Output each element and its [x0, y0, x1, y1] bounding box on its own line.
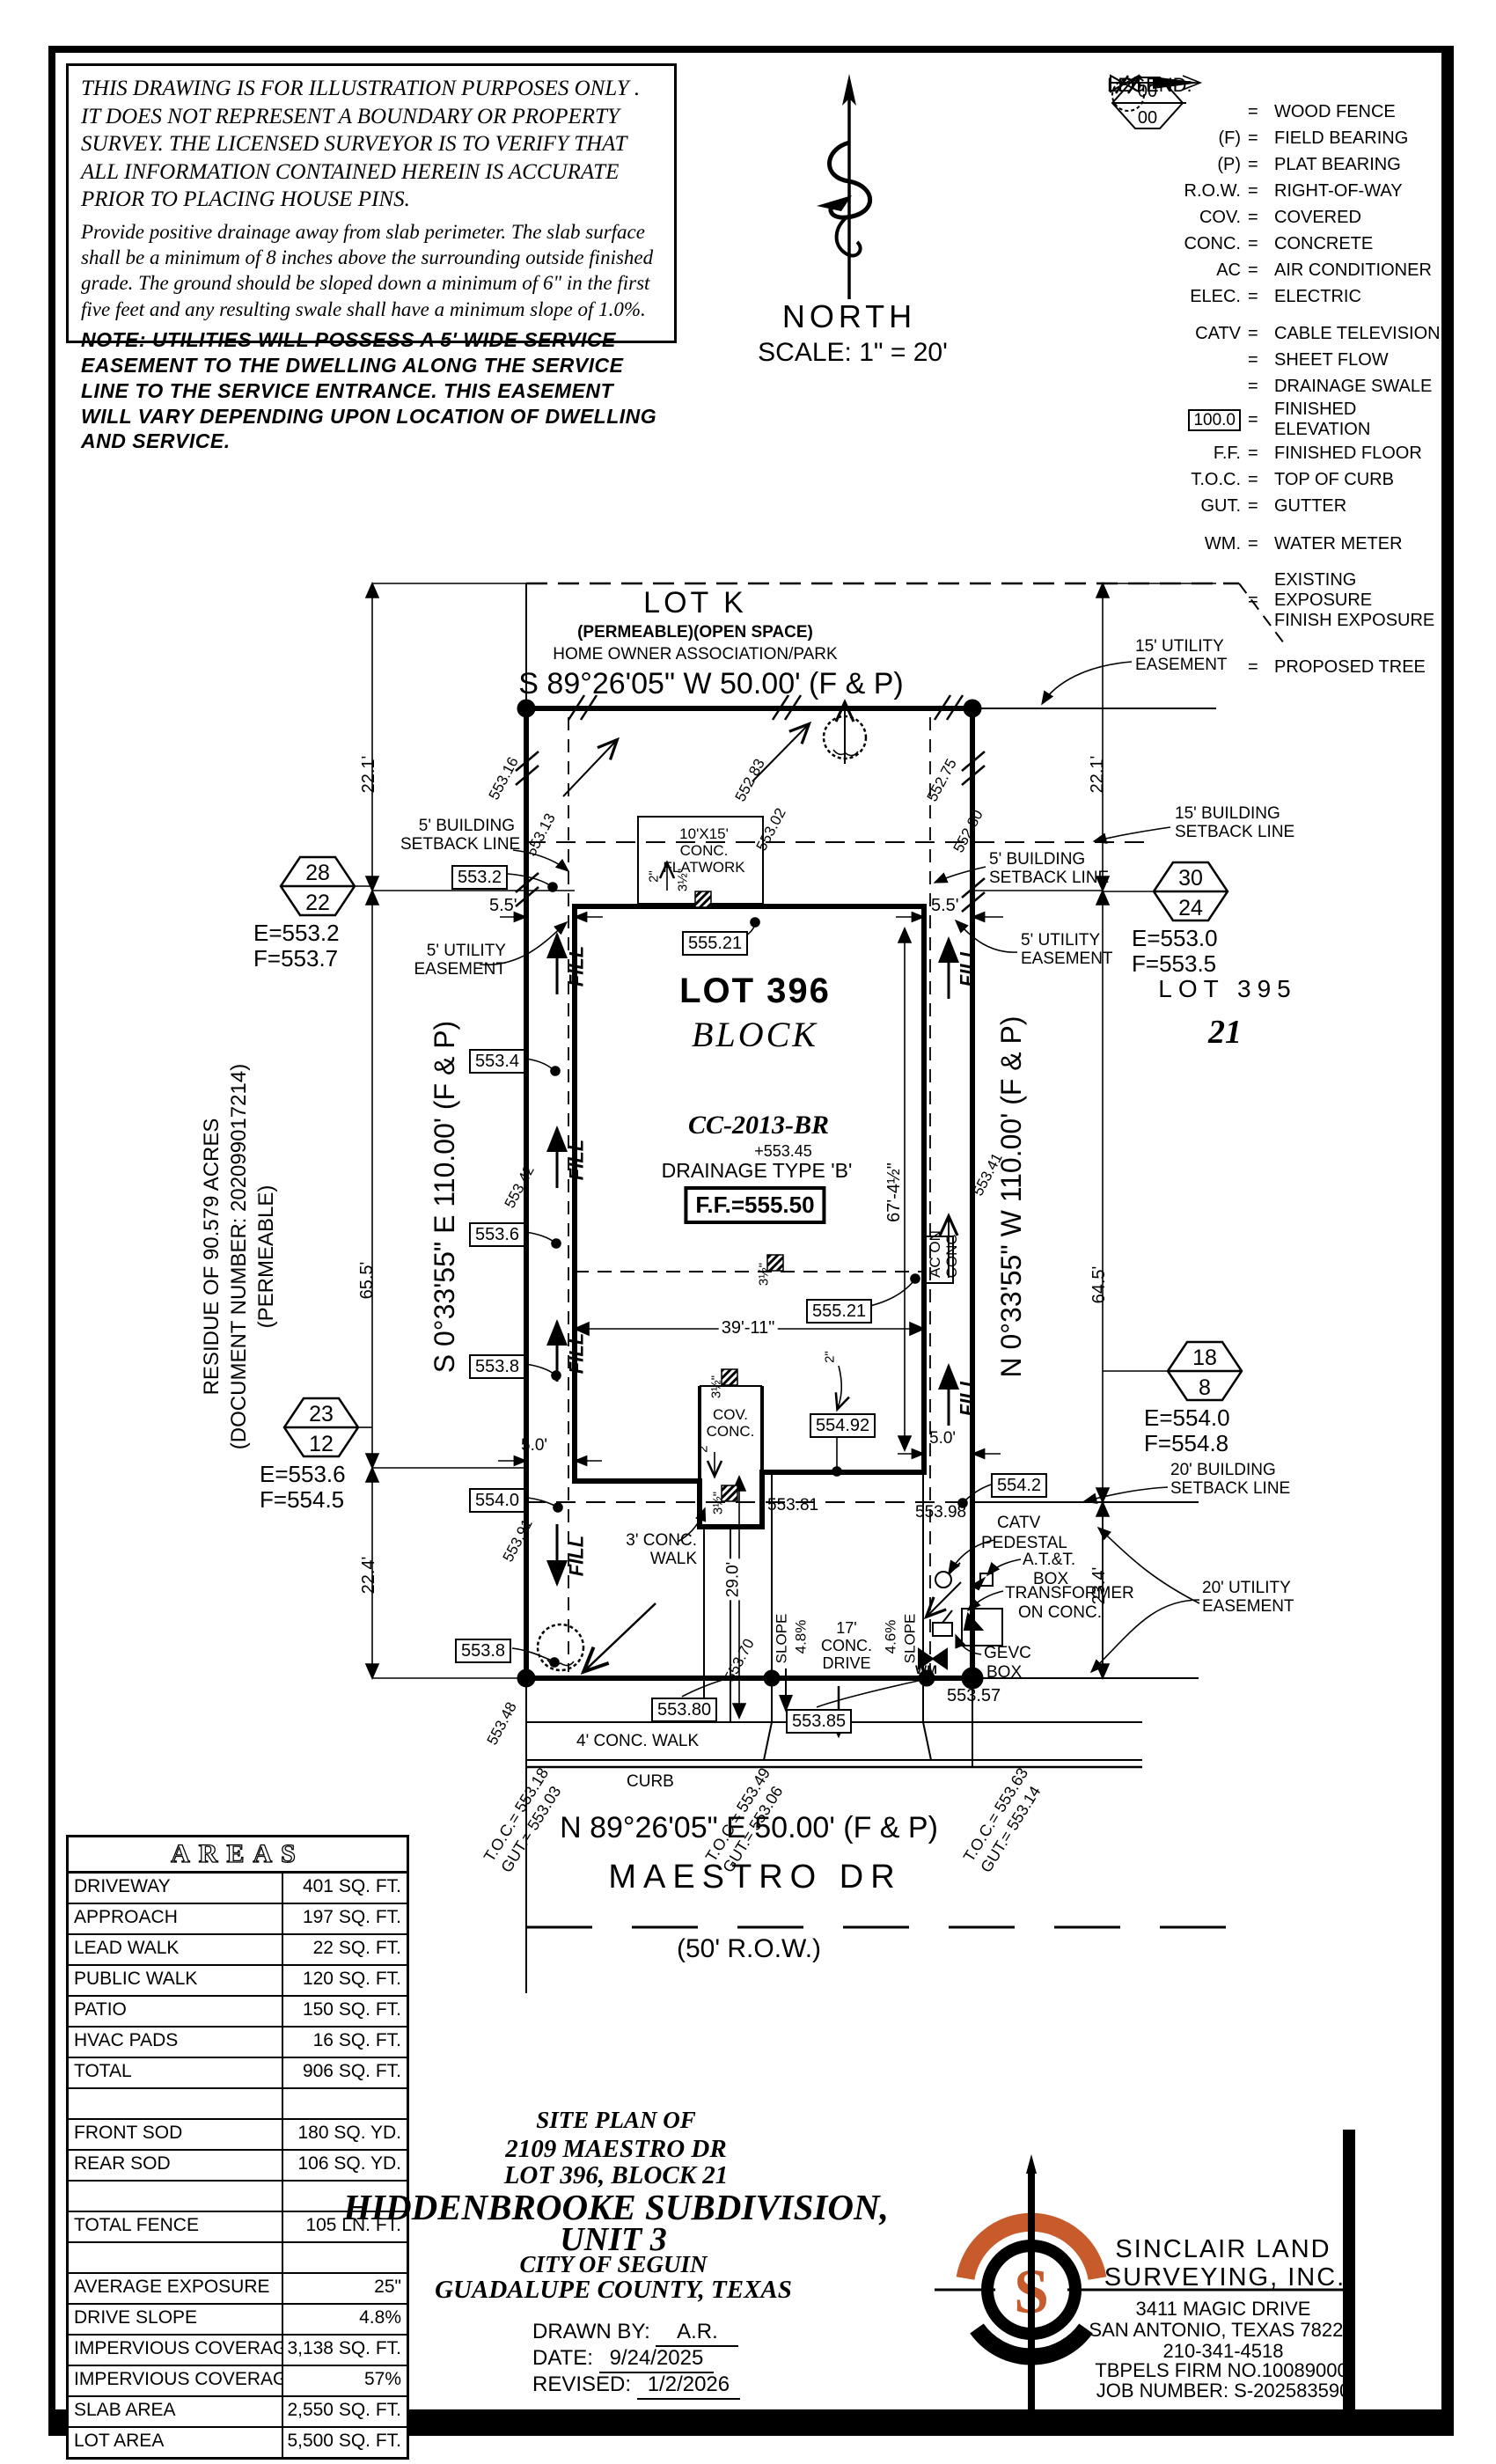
hex-top: 18	[1192, 1346, 1217, 1370]
mark-2in: 2"	[648, 870, 663, 883]
elev-box: 553.6	[469, 1222, 525, 1247]
callout-bsl20: 20' BUILDINGSETBACK LINE	[1170, 1461, 1290, 1499]
site-plan-sheet: S THIS DRAWING IS FOR ILLUSTRATION PURPO…	[0, 0, 1496, 2464]
table-row	[69, 2089, 407, 2120]
callout-3-walk: 3' CONC.WALK	[614, 1531, 697, 1569]
callout-ue5-right: 5' UTILITYEASEMENT	[1021, 931, 1113, 969]
lot-395-label: LOT 395	[1158, 975, 1296, 1002]
drawn-by-row: DRAWN BY: A.R.	[532, 2320, 738, 2347]
mark-2in: 2"	[697, 1441, 712, 1453]
hex-f: F=554.8	[1144, 1431, 1228, 1456]
dim-drive-length: 29.0'	[723, 1559, 742, 1601]
mark-3half: 3½"	[758, 1263, 773, 1286]
lot-k-sub2: HOME OWNER ASSOCIATION/PARK	[553, 645, 837, 664]
lot-396-label: LOT 396	[679, 972, 831, 1011]
table-row: SLAB AREA2,550 SQ. FT.	[69, 2397, 407, 2428]
callout-ue20: 20' UTILITYEASEMENT	[1202, 1579, 1294, 1617]
callout-ue15: 15' UTILITYEASEMENT	[1135, 637, 1228, 675]
revised-row: REVISED: 1/2/2026	[532, 2372, 740, 2400]
surveyor-name-1: SINCLAIR LAND	[1115, 2235, 1331, 2263]
hex-bottom: 22	[305, 891, 330, 915]
callout-gevc2: BOX	[986, 1663, 1022, 1682]
hex-top: 23	[309, 1402, 334, 1426]
hex-f: F=553.7	[253, 946, 338, 972]
revised-value: 1/2/2026	[637, 2372, 740, 2400]
disclaimer-line-1: THIS DRAWING IS FOR ILLUSTRATION PURPOSE…	[81, 75, 662, 214]
surveyor-address-1: 3411 MAGIC DRIVE	[1136, 2299, 1311, 2321]
callout-cov-conc: COV.CONC.	[707, 1406, 755, 1440]
dim-house-depth: 67'-4½"	[884, 1160, 904, 1225]
table-row: PUBLIC WALK120 SQ. FT.	[69, 1966, 407, 1997]
street-label: MAESTRO DR	[608, 1859, 901, 1896]
table-row: LOT AREA5,500 SQ. FT.	[69, 2428, 407, 2457]
callout-curb: CURB	[627, 1772, 674, 1791]
mark-2in: 2"	[824, 1351, 839, 1363]
elev-box: 555.21	[806, 1299, 872, 1324]
lot-k-sub: (PERMEABLE)(OPEN SPACE)	[577, 623, 813, 642]
table-row: FRONT SOD180 SQ. YD.	[69, 2120, 407, 2151]
mark-3half: 3½"	[677, 869, 692, 891]
callout-att1: A.T.&T.	[1023, 1551, 1075, 1569]
fill-label: FILL	[567, 1536, 589, 1576]
table-row	[69, 2243, 407, 2274]
hex-top: 30	[1178, 866, 1203, 891]
surveyor-address-2: SAN ANTONIO, TEXAS 78229	[1089, 2320, 1353, 2342]
north-arrow-icon	[817, 74, 870, 299]
drawn-by-value: A.R.	[656, 2320, 738, 2347]
elev-box: 554.0	[469, 1488, 525, 1513]
north-label: NORTH	[782, 299, 916, 334]
dim-setback-left: 5.5'	[489, 896, 517, 915]
table-row: HVAC PADS16 SQ. FT.	[69, 2028, 407, 2058]
table-row: TOTAL906 SQ. FT.	[69, 2058, 407, 2089]
callout-drive: 17'CONC.DRIVE	[818, 1619, 875, 1672]
callout-4-walk: 4' CONC. WALK	[574, 1732, 701, 1750]
elev-box: 553.85	[786, 1709, 852, 1734]
spot-553-45: +553.45	[754, 1142, 812, 1160]
block-label: BLOCK	[692, 1016, 818, 1055]
surveyor-job-number: JOB NUMBER: S-202583590	[1096, 2380, 1351, 2402]
dim-right-mid: 64.5'	[1089, 1266, 1109, 1304]
fill-label: FILL	[567, 946, 589, 986]
wm-label: WM	[915, 1663, 937, 1677]
callout-slope-right-val: 4.6%	[882, 1620, 898, 1654]
disclaimer-line-2: Provide positive drainage away from slab…	[81, 219, 662, 323]
wood-fence-ticks	[516, 695, 985, 912]
elev-box: 553.80	[651, 1698, 717, 1722]
fill-label: FILL	[567, 1333, 589, 1374]
areas-title: AREAS	[69, 1837, 407, 1874]
table-row: PATIO150 SQ. FT.	[69, 1997, 407, 2028]
catv-pedestal-icon	[935, 1572, 951, 1588]
callout-ue5-left: 5' UTILITYEASEMENT	[387, 942, 506, 979]
fill-label: FILL	[957, 946, 979, 986]
hex-f: F=553.5	[1132, 951, 1216, 977]
callout-catv1: CATV	[997, 1514, 1040, 1532]
hex-e: E=554.0	[1144, 1405, 1230, 1431]
block-21-label: 21	[1208, 1014, 1242, 1052]
mark-3half: 3½"	[712, 1492, 727, 1514]
dim-house-width: 39'-11"	[719, 1318, 778, 1338]
table-row: DRIVEWAY401 SQ. FT.	[69, 1874, 407, 1904]
callout-tx2: ON CONC.	[1018, 1603, 1102, 1622]
elev-box: 553.8	[469, 1354, 525, 1379]
fill-label: FILL	[567, 1140, 589, 1180]
disclaimer-note: NOTE: UTILITIES WILL POSSESS A 5' WIDE S…	[81, 327, 662, 454]
fill-label: FILL	[957, 1375, 979, 1416]
elev-box: 555.21	[682, 931, 748, 956]
table-row: AVERAGE EXPOSURE25"	[69, 2274, 407, 2305]
areas-table: AREAS DRIVEWAY401 SQ. FT. APPROACH197 SQ…	[66, 1835, 409, 2460]
residue-note: RESIDUE OF 90.579 ACRES (DOCUMENT NUMBER…	[198, 975, 281, 1538]
hex-e: E=553.0	[1132, 926, 1218, 951]
row-label: (50' R.O.W.)	[677, 1934, 821, 1964]
callout-bsl5-right: 5' BUILDINGSETBACK LINE	[989, 850, 1109, 888]
surveyor-firm: TBPELS FIRM NO.10089000	[1095, 2360, 1347, 2382]
spot-elev: 553.81	[767, 1496, 818, 1514]
table-row: APPROACH197 SQ. FT.	[69, 1904, 407, 1935]
elev-box: 553.4	[469, 1049, 525, 1074]
callout-bsl5-left: 5' BUILDINGSETBACK LINE	[400, 817, 515, 854]
gevc-box-icon	[933, 1623, 952, 1636]
dim-gap-right: 5.0'	[929, 1429, 956, 1448]
table-row: DRIVE SLOPE4.8%	[69, 2305, 407, 2336]
date-value: 9/24/2025	[599, 2346, 715, 2373]
bearing-right: N 0°33'55" W 110.00' (F & P)	[996, 1016, 1028, 1377]
table-row: LEAD WALK22 SQ. FT.	[69, 1935, 407, 1966]
callout-tx1: TRANSFORMER	[1005, 1584, 1134, 1602]
lot-boundary	[517, 583, 1287, 1689]
hex-bottom: 8	[1199, 1375, 1211, 1400]
spot-elev: 553.98	[915, 1503, 966, 1522]
title-line-3: LOT 396, BLOCK 21	[504, 2161, 729, 2189]
elev-box: 554.2	[991, 1473, 1047, 1498]
scale-label: SCALE: 1" = 20'	[758, 338, 948, 368]
water-meter-icon: WM.	[1107, 534, 1248, 554]
hex-e: E=553.6	[260, 1462, 346, 1487]
disclaimer-box: THIS DRAWING IS FOR ILLUSTRATION PURPOSE…	[66, 63, 677, 343]
callout-slope-left-val: 4.8%	[792, 1620, 809, 1654]
callout-bsl15: 15' BUILDINGSETBACK LINE	[1175, 804, 1294, 842]
mark-3half: 3½"	[710, 1375, 725, 1398]
dim-left-bot: 22.4'	[359, 1557, 378, 1595]
finished-floor-value: F.F.=555.50	[684, 1186, 825, 1224]
legend: LEGEND: =WOOD FENCE (F)=FIELD BEARING (P…	[1107, 74, 1450, 690]
title-line-2: 2109 MAESTRO DR	[505, 2135, 726, 2163]
callout-ac: AC ONCONC.	[927, 1230, 960, 1279]
dim-left-mid: 65.5'	[357, 1262, 377, 1300]
table-row: REAR SOD106 SQ. YD.	[69, 2151, 407, 2182]
date-row: DATE: 9/24/2025	[532, 2346, 714, 2373]
callout-slope-right: SLOPE	[901, 1614, 918, 1664]
title-line-6: CITY OF SEGUIN	[519, 2251, 707, 2277]
hex-bottom: 24	[1178, 896, 1203, 920]
bearing-left: S 0°33'55" E 110.00' (F & P)	[429, 1021, 461, 1373]
callout-slope-left: SLOPE	[773, 1614, 789, 1664]
cc-number: CC-2013-BR	[688, 1111, 829, 1140]
hex-e: E=553.2	[253, 920, 340, 946]
dim-left-top: 22.1'	[359, 756, 378, 794]
bearing-top: S 89°26'05" W 50.00' (F & P)	[518, 667, 903, 700]
dim-setback-right: 5.5'	[931, 896, 959, 915]
table-row: IMPERVIOUS COVERAGE3,138 SQ. FT.	[69, 2336, 407, 2366]
dim-right-top: 22.1'	[1088, 756, 1107, 794]
title-line-7: GUADALUPE COUNTY, TEXAS	[435, 2276, 792, 2304]
drainage-type: DRAINAGE TYPE 'B'	[662, 1160, 853, 1183]
surveyor-name-2: SURVEYING, INC.	[1104, 2263, 1346, 2292]
spot-elev: 553.57	[947, 1686, 1001, 1705]
hex-f: F=554.5	[260, 1487, 344, 1513]
lot-k-label: LOT K	[643, 586, 747, 620]
elev-box: 554.92	[810, 1413, 876, 1438]
hex-top: 28	[305, 861, 330, 885]
elev-box: 553.8	[455, 1639, 511, 1663]
title-line-1: SITE PLAN OF	[536, 2107, 696, 2133]
finished-elevation-icon: 100.0	[1188, 409, 1241, 431]
callout-gevc1: GEVC	[984, 1644, 1031, 1662]
elev-box: 553.2	[451, 865, 508, 890]
dim-gap-left: 5.0'	[521, 1436, 547, 1455]
hex-bottom: 12	[309, 1432, 334, 1456]
table-row: IMPERVIOUS COVERAGE %57%	[69, 2366, 407, 2397]
